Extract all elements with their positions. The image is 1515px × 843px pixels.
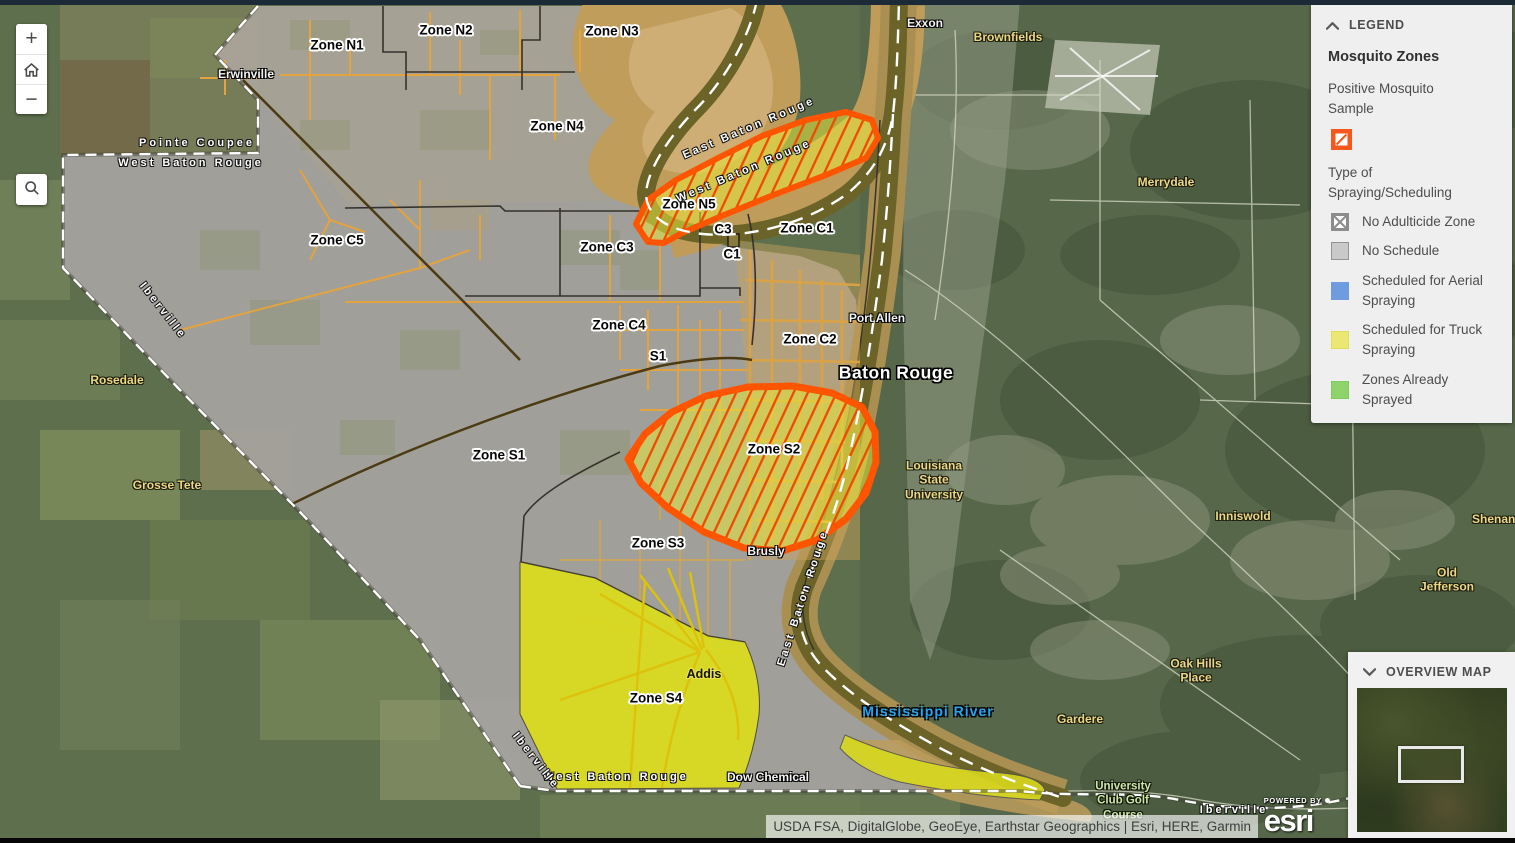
legend-swatch (1331, 282, 1349, 300)
home-icon (23, 62, 40, 78)
home-button[interactable] (16, 54, 47, 84)
legend-header-label: LEGEND (1349, 18, 1405, 32)
legend-item: Scheduled for Truck Spraying (1328, 320, 1498, 361)
legend-item: No Adulticide Zone (1328, 212, 1498, 232)
positive-sample-label: Positive Mosquito Sample (1328, 79, 1478, 120)
type-section-label: Type of Spraying/Scheduling (1328, 163, 1478, 204)
positive-sample-icon (1331, 129, 1352, 150)
overview-thumbnail (1357, 688, 1507, 832)
legend-swatch (1331, 331, 1349, 349)
legend-item: Scheduled for Aerial Spraying (1328, 271, 1498, 312)
zoom-controls: + − (16, 24, 47, 114)
legend-header[interactable]: LEGEND (1311, 5, 1512, 41)
legend-item: No Schedule (1328, 241, 1498, 261)
overview-header[interactable]: OVERVIEW MAP (1348, 652, 1515, 688)
legend-items: No Adulticide ZoneNo ScheduleScheduled f… (1328, 212, 1498, 410)
overview-map-panel: OVERVIEW MAP (1348, 652, 1515, 838)
legend-swatch (1331, 213, 1349, 231)
legend-item-label: No Adulticide Zone (1362, 212, 1486, 232)
top-bar (0, 0, 1515, 5)
attribution-bar: USDA FSA, DigitalGlobe, GeoEye, Earthsta… (766, 815, 1258, 838)
search-icon (24, 180, 40, 196)
positive-sample-swatch (1331, 129, 1352, 150)
search-button[interactable] (16, 174, 47, 205)
map-canvas[interactable] (0, 0, 1515, 843)
bottom-bar (0, 838, 1515, 843)
esri-wordmark: esri (1264, 805, 1330, 836)
legend-item: Zones Already Sprayed (1328, 370, 1498, 411)
zoom-in-button[interactable]: + (16, 24, 47, 54)
esri-dot-icon (1325, 798, 1330, 803)
legend-swatch (1331, 381, 1349, 399)
legend-swatch (1331, 242, 1349, 260)
airport-area (1045, 40, 1160, 115)
chevron-down-icon (1363, 668, 1376, 677)
overview-header-label: OVERVIEW MAP (1386, 665, 1492, 679)
esri-logo[interactable]: POWERED BY esri (1264, 797, 1330, 837)
zoom-out-button[interactable]: − (16, 84, 47, 114)
legend-item-label: Zones Already Sprayed (1362, 370, 1486, 411)
legend-item-label: Scheduled for Aerial Spraying (1362, 271, 1486, 312)
legend-item-label: Scheduled for Truck Spraying (1362, 320, 1486, 361)
chevron-up-icon (1326, 21, 1339, 30)
map-application: Zone N1Zone N2Zone N3Zone N4Zone N5Zone … (0, 0, 1515, 843)
overview-extent-box[interactable] (1398, 746, 1464, 784)
legend-item-label: No Schedule (1362, 241, 1486, 261)
legend-panel: LEGEND Mosquito Zones Positive Mosquito … (1311, 5, 1512, 423)
attribution-text: USDA FSA, DigitalGlobe, GeoEye, Earthsta… (773, 819, 1251, 834)
legend-layer-title: Mosquito Zones (1328, 49, 1498, 65)
